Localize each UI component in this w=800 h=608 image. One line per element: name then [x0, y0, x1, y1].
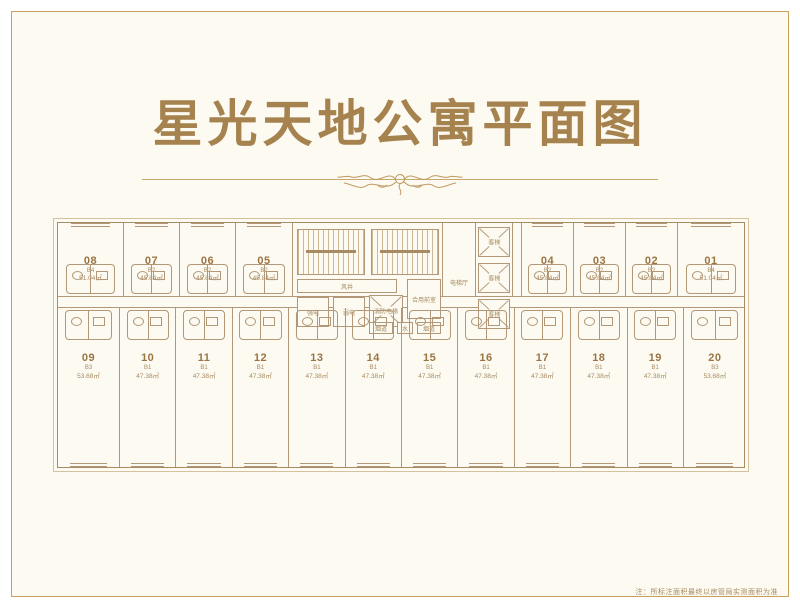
bathroom-pod [521, 310, 563, 340]
page-title: 星光天地公寓平面图 [0, 84, 800, 156]
unit-type: B1 [402, 364, 457, 372]
unit-number: 16 [458, 352, 513, 364]
unit-cell-06: 06B245.84㎡ [180, 223, 236, 296]
bathroom-pod [187, 264, 229, 294]
window-mark [636, 223, 667, 227]
toilet-icon [375, 317, 387, 326]
unit-label: 13B147.38㎡ [289, 352, 344, 380]
unit-label: 10B147.38㎡ [120, 352, 175, 380]
window-mark [691, 223, 731, 227]
window-mark [135, 223, 168, 227]
unit-area: 47.38㎡ [515, 373, 570, 381]
unit-label: 17B147.38㎡ [515, 352, 570, 380]
flourish-ornament-icon [315, 164, 485, 198]
unit-label: 20B353.68㎡ [684, 352, 746, 380]
unit-cell-11: 11B147.38㎡ [176, 308, 232, 467]
bathroom-pod [243, 264, 286, 294]
toilet-icon [719, 317, 731, 326]
bathroom-pod [528, 264, 567, 294]
unit-area: 47.38㎡ [233, 373, 288, 381]
toilet-icon [150, 317, 162, 326]
floor-plan-top-row: 08B451.04㎡07B245.84㎡06B245.84㎡05B245.84㎡… [58, 223, 744, 296]
unit-type: B1 [628, 364, 683, 372]
unit-cell-01: 01B451.04㎡ [678, 223, 744, 296]
toilet-icon [266, 271, 278, 280]
bathroom-pod [127, 310, 169, 340]
unit-cell-07: 07B245.84㎡ [124, 223, 180, 296]
unit-cell-16: 16B147.38㎡ [458, 308, 514, 467]
bathroom-pod [580, 264, 619, 294]
window-mark [469, 463, 502, 467]
window-mark [582, 463, 615, 467]
bathroom-pod [66, 264, 115, 294]
unit-label: 12B147.38㎡ [233, 352, 288, 380]
floor-plan: 08B451.04㎡07B245.84㎡06B245.84㎡05B245.84㎡… [57, 222, 745, 468]
building-core: 风井 强电 弱电 消防电梯 合用前室 烟道 水 烟道 [292, 223, 443, 296]
basin-icon [638, 271, 649, 280]
unit-number: 19 [628, 352, 683, 364]
basin-icon [358, 317, 369, 326]
bathroom-pod [578, 310, 620, 340]
toilet-icon [263, 317, 275, 326]
wind-shaft-room: 风井 [297, 279, 397, 293]
window-mark [526, 463, 559, 467]
basin-icon [586, 271, 597, 280]
unit-cell-09: 09B353.68㎡ [58, 308, 120, 467]
stairwell-right-icon [371, 229, 439, 275]
basin-icon [189, 317, 200, 326]
toilet-icon [209, 271, 221, 280]
unit-area: 53.68㎡ [684, 373, 746, 381]
unit-label: 15B147.38㎡ [402, 352, 457, 380]
bathroom-pod [691, 310, 738, 340]
unit-area: 47.38㎡ [571, 373, 626, 381]
toilet-icon [652, 271, 664, 280]
unit-label: 19B147.38㎡ [628, 352, 683, 380]
unit-cell-19: 19B147.38㎡ [628, 308, 684, 467]
unit-number: 20 [684, 352, 746, 364]
unit-type: B1 [458, 364, 513, 372]
toilet-icon [601, 317, 613, 326]
unit-type: B1 [233, 364, 288, 372]
toilet-icon [548, 271, 560, 280]
passenger-elevator-shaft: 客梯 [478, 227, 510, 257]
disclaimer-footnote: 注：所标注面积最终以房管局实测面积为准 [636, 587, 779, 597]
toilet-icon [153, 271, 165, 280]
window-mark [244, 463, 277, 467]
bathroom-pod [131, 264, 173, 294]
unit-type: B1 [571, 364, 626, 372]
unit-area: 47.38㎡ [458, 373, 513, 381]
unit-cell-20: 20B353.68㎡ [684, 308, 746, 467]
passenger-elevator-shaft: 客梯 [478, 263, 510, 293]
window-mark [413, 463, 446, 467]
basin-icon [72, 271, 83, 280]
basin-icon [302, 317, 313, 326]
unit-number: 11 [176, 352, 231, 364]
basin-icon [471, 317, 482, 326]
unit-number: 14 [346, 352, 401, 364]
basin-icon [133, 317, 144, 326]
basin-icon [527, 317, 538, 326]
bathroom-pod [65, 310, 111, 340]
elevator-bank: 客梯 客梯 客梯 [475, 223, 513, 296]
unit-cell-05: 05B245.84㎡ [236, 223, 292, 296]
unit-type: B3 [58, 364, 119, 372]
unit-label: 09B353.68㎡ [58, 352, 119, 380]
unit-area: 53.68㎡ [58, 373, 119, 381]
window-mark [187, 463, 220, 467]
bathroom-pod [183, 310, 225, 340]
toilet-icon [206, 317, 218, 326]
basin-icon [249, 271, 260, 280]
bathroom-pod [632, 264, 671, 294]
unit-area: 47.38㎡ [176, 373, 231, 381]
unit-area: 47.38㎡ [120, 373, 175, 381]
unit-cell-12: 12B147.38㎡ [233, 308, 289, 467]
toilet-icon [93, 317, 105, 326]
bathroom-pod [409, 310, 451, 340]
toilet-icon [488, 317, 500, 326]
unit-label: 16B147.38㎡ [458, 352, 513, 380]
window-mark [357, 463, 390, 467]
window-mark [71, 223, 110, 227]
unit-type: B1 [289, 364, 344, 372]
basin-icon [415, 317, 426, 326]
toilet-icon [657, 317, 669, 326]
unit-type: B1 [515, 364, 570, 372]
window-mark [191, 223, 224, 227]
basin-icon [697, 317, 708, 326]
unit-number: 17 [515, 352, 570, 364]
unit-area: 47.38㎡ [402, 373, 457, 381]
window-mark [247, 223, 281, 227]
window-mark [131, 463, 164, 467]
unit-cell-14: 14B147.38㎡ [346, 308, 402, 467]
unit-number: 15 [402, 352, 457, 364]
basin-icon [692, 271, 703, 280]
bathroom-pod [296, 310, 338, 340]
bathroom-pod [686, 264, 736, 294]
unit-area: 47.38㎡ [289, 373, 344, 381]
stairwell-left-icon [297, 229, 365, 275]
toilet-icon [319, 317, 331, 326]
bathroom-pod [465, 310, 507, 340]
unit-number: 18 [571, 352, 626, 364]
window-mark [532, 223, 563, 227]
unit-cell-18: 18B147.38㎡ [571, 308, 627, 467]
toilet-icon [717, 271, 729, 280]
unit-type: B1 [346, 364, 401, 372]
basin-icon [584, 317, 595, 326]
basin-icon [245, 317, 256, 326]
toilet-icon [600, 271, 612, 280]
unit-number: 09 [58, 352, 119, 364]
unit-cell-17: 17B147.38㎡ [515, 308, 571, 467]
window-mark [584, 223, 615, 227]
basin-icon [640, 317, 651, 326]
unit-cell-02: 02B245.84㎡ [626, 223, 678, 296]
core-wall-gap [513, 223, 522, 296]
elevator-hall: 电梯厅 [443, 223, 476, 296]
unit-number: 12 [233, 352, 288, 364]
unit-cell-15: 15B147.38㎡ [402, 308, 458, 467]
window-mark [696, 463, 733, 467]
elevator-hall-label: 电梯厅 [443, 278, 476, 287]
unit-number: 13 [289, 352, 344, 364]
bathroom-pod [239, 310, 281, 340]
unit-type: B1 [120, 364, 175, 372]
unit-label: 14B147.38㎡ [346, 352, 401, 380]
basin-icon [71, 317, 82, 326]
unit-type: B1 [176, 364, 231, 372]
unit-cell-03: 03B245.84㎡ [574, 223, 626, 296]
unit-cell-08: 08B451.04㎡ [58, 223, 124, 296]
unit-type: B3 [684, 364, 746, 372]
top-left-units: 08B451.04㎡07B245.84㎡06B245.84㎡05B245.84㎡ [58, 223, 292, 296]
unit-cell-04: 04B245.84㎡ [522, 223, 574, 296]
unit-area: 47.38㎡ [628, 373, 683, 381]
toilet-icon [432, 317, 444, 326]
unit-cell-10: 10B147.38㎡ [120, 308, 176, 467]
toilet-icon [96, 271, 108, 280]
bottom-units: 09B353.68㎡10B147.38㎡11B147.38㎡12B147.38㎡… [58, 308, 744, 467]
unit-label: 11B147.38㎡ [176, 352, 231, 380]
window-mark [300, 463, 333, 467]
window-mark [70, 463, 107, 467]
toilet-icon [544, 317, 556, 326]
window-mark [639, 463, 672, 467]
top-right-units: 04B245.84㎡03B245.84㎡02B245.84㎡01B451.04㎡ [522, 223, 744, 296]
basin-icon [534, 271, 545, 280]
unit-label: 18B147.38㎡ [571, 352, 626, 380]
bathroom-pod [352, 310, 394, 340]
unit-cell-13: 13B147.38㎡ [289, 308, 345, 467]
unit-area: 47.38㎡ [346, 373, 401, 381]
bathroom-pod [634, 310, 676, 340]
basin-icon [193, 271, 204, 280]
basin-icon [137, 271, 148, 280]
unit-number: 10 [120, 352, 175, 364]
